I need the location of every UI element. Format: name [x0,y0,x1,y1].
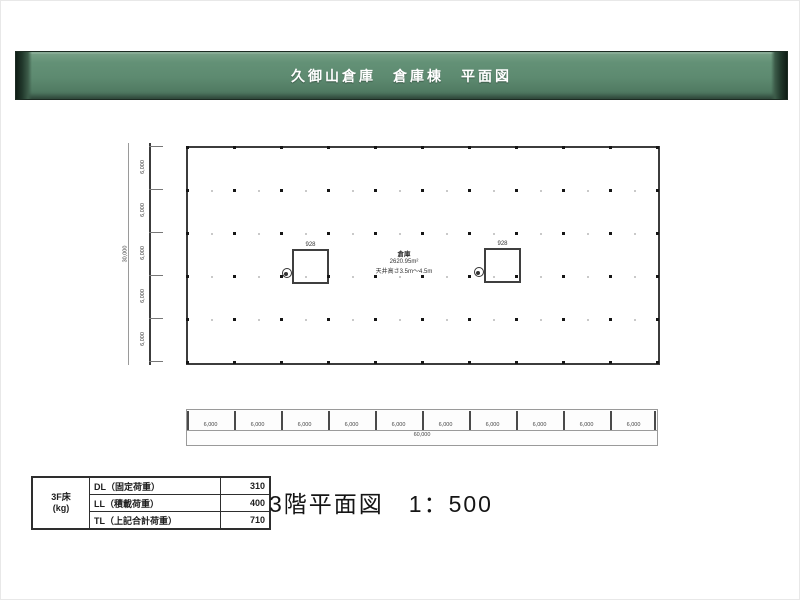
minor-grid-mark [258,233,260,235]
column-dot [374,189,377,192]
shaft-2-stair-symbol [474,267,484,277]
room-area: 2620.95m² [356,259,452,265]
left-dim-tick [149,318,163,319]
load-table-body: 3F床(kg)DL（固定荷重）310LL（積載荷重）400TL（上記合計荷重）7… [32,477,270,529]
column-dot [233,232,236,235]
minor-grid-mark [352,276,354,278]
minor-grid-mark [399,276,401,278]
minor-grid-mark [587,276,589,278]
left-dim-tick [149,146,163,147]
column-dot [327,146,330,149]
column-dot [562,232,565,235]
column-dot [468,318,471,321]
minor-grid-mark [352,233,354,235]
column-dot [515,189,518,192]
minor-grid-mark [634,233,636,235]
column-dot [327,232,330,235]
column-dot [468,232,471,235]
minor-grid-mark [399,233,401,235]
column-dot [233,275,236,278]
slide: 久御山倉庫 倉庫棟 平面図 30,000 6,0006,0006,0006,00… [0,0,800,600]
minor-grid-mark [258,319,260,321]
column-dot [421,361,424,364]
column-dot [562,146,565,149]
title-banner: 久御山倉庫 倉庫棟 平面図 [15,51,788,100]
shaft-1-stair-symbol [282,268,292,278]
minor-grid-mark [493,190,495,192]
bottom-dim-segment-label: 6,000 [422,419,469,430]
banner-right-cap [771,52,787,99]
minor-grid-mark [540,276,542,278]
column-dot [374,361,377,364]
bottom-dim-segment-label: 6,000 [610,419,657,430]
load-label: TL（上記合計荷重） [90,512,221,530]
column-dot [374,318,377,321]
column-dot [609,318,612,321]
banner-left-cap [16,52,32,99]
left-dim-segment-label: 6,000 [140,197,146,223]
left-dim-tick [149,275,163,276]
minor-grid-mark [446,319,448,321]
left-dim-segment-label: 6,000 [140,283,146,309]
minor-grid-mark [634,319,636,321]
left-dim-segment-label: 6,000 [140,154,146,180]
column-dot [562,318,565,321]
minor-grid-mark [305,190,307,192]
bottom-dimension-strip: 60,000 6,0006,0006,0006,0006,0006,0006,0… [186,409,658,446]
load-label: LL（積載荷重） [90,495,221,512]
drawing-caption: 3階平面図 1：500 [269,485,493,519]
room-ceiling-height: 天井高さ3.5m〜4.5m [356,266,452,275]
minor-grid-mark [493,276,495,278]
column-dot [656,189,659,192]
load-value: 400 [221,495,271,512]
minor-grid-mark [399,319,401,321]
minor-grid-mark [258,190,260,192]
column-dot [421,189,424,192]
minor-grid-mark [211,233,213,235]
left-dim-tick [149,232,163,233]
load-table-row-header: 3F床(kg) [32,477,90,529]
shaft-1-label: 928 [305,242,315,248]
minor-grid-mark [634,276,636,278]
column-dot [609,146,612,149]
bottom-dim-total: 60,000 [187,432,657,438]
column-dot [327,189,330,192]
column-dot [280,146,283,149]
column-dot [186,361,189,364]
minor-grid-mark [587,233,589,235]
column-dot [515,146,518,149]
column-dot [186,146,189,149]
column-dot [656,275,659,278]
column-dot [186,318,189,321]
minor-grid-mark [211,190,213,192]
left-dimension-strip: 30,000 6,0006,0006,0006,0006,000 [126,146,186,361]
room-annotation: 倉庫 2620.95m² 天井高さ3.5m〜4.5m [356,248,452,275]
column-dot [280,318,283,321]
column-dot [609,361,612,364]
minor-grid-mark [399,190,401,192]
column-dot [656,146,659,149]
column-dot [609,232,612,235]
column-dot [186,275,189,278]
column-dot [468,189,471,192]
column-dot [562,189,565,192]
column-dot [280,361,283,364]
column-dot [374,232,377,235]
column-dot [656,318,659,321]
column-dot [468,361,471,364]
minor-grid-mark [446,233,448,235]
shaft-1: 928 [292,249,329,284]
document-title: 久御山倉庫 倉庫棟 平面図 [291,66,512,86]
minor-grid-mark [211,276,213,278]
minor-grid-mark [352,190,354,192]
minor-grid-mark [446,276,448,278]
bottom-dim-segment-label: 6,000 [563,419,610,430]
minor-grid-mark [305,276,307,278]
minor-grid-mark [352,319,354,321]
column-dot [280,232,283,235]
column-dot [515,361,518,364]
column-dot [609,189,612,192]
column-dot [186,232,189,235]
column-dot [186,189,189,192]
room-name: 倉庫 [356,248,452,258]
load-table: 3F床(kg)DL（固定荷重）310LL（積載荷重）400TL（上記合計荷重）7… [31,476,271,530]
bottom-dim-segment-label: 6,000 [281,419,328,430]
load-label: DL（固定荷重） [90,477,221,495]
column-dot [468,275,471,278]
left-dim-total: 30,000 [122,245,128,262]
minor-grid-mark [305,233,307,235]
plan-canvas: 928 928 倉庫 2620.95m² 天井高さ3.5m〜4.5m [186,146,660,365]
column-dot [515,275,518,278]
column-dot [327,275,330,278]
minor-grid-mark [258,276,260,278]
column-dot [233,361,236,364]
column-dot [515,318,518,321]
column-dot [327,361,330,364]
left-dim-tick [149,361,163,362]
load-value: 710 [221,512,271,530]
column-dot [374,275,377,278]
minor-grid-mark [634,190,636,192]
column-dot [421,146,424,149]
shaft-2-label: 928 [497,241,507,247]
column-dot [233,189,236,192]
column-dot [656,361,659,364]
minor-grid-mark [446,190,448,192]
column-dot [562,361,565,364]
minor-grid-mark [540,319,542,321]
bottom-dim-segment-label: 6,000 [187,419,234,430]
minor-grid-mark [587,190,589,192]
bottom-dim-segment-label: 6,000 [516,419,563,430]
column-dot [562,275,565,278]
bottom-dim-segment-label: 6,000 [469,419,516,430]
column-dot [656,232,659,235]
bottom-dim-segment-label: 6,000 [328,419,375,430]
left-dim-tick [149,189,163,190]
column-dot [609,275,612,278]
column-dot [515,232,518,235]
column-dot [421,275,424,278]
minor-grid-mark [540,190,542,192]
load-table-row: 3F床(kg)DL（固定荷重）310 [32,477,270,495]
left-dim-main-line [149,143,151,365]
minor-grid-mark [493,233,495,235]
column-dot [233,318,236,321]
bottom-dim-segment-label: 6,000 [375,419,422,430]
minor-grid-mark [493,319,495,321]
column-dot [280,189,283,192]
column-dot [468,146,471,149]
column-dot [421,232,424,235]
left-dim-segment-label: 6,000 [140,240,146,266]
column-dot [421,318,424,321]
load-value: 310 [221,477,271,495]
bottom-dim-segment-label: 6,000 [234,419,281,430]
column-dot [327,318,330,321]
minor-grid-mark [211,319,213,321]
left-dim-segment-label: 6,000 [140,326,146,352]
minor-grid-mark [587,319,589,321]
bottom-dim-divider [187,430,657,431]
column-dot [233,146,236,149]
minor-grid-mark [540,233,542,235]
minor-grid-mark [305,319,307,321]
column-dot [280,275,283,278]
column-dot [374,146,377,149]
